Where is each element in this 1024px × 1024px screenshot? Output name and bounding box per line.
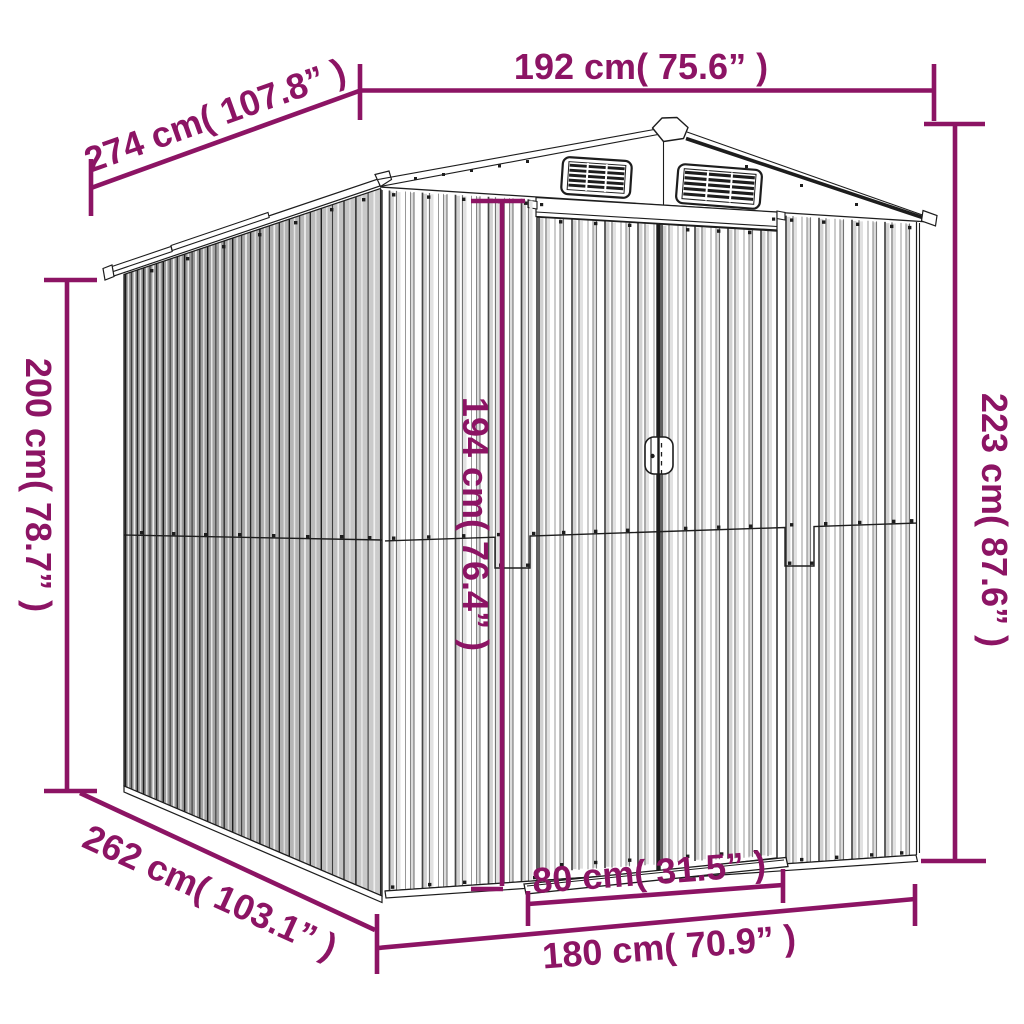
svg-text:194 cm( 76.4” ): 194 cm( 76.4” ) xyxy=(455,397,496,651)
svg-text:200 cm( 78.7” ): 200 cm( 78.7” ) xyxy=(18,358,59,612)
svg-text:192 cm( 75.6” ): 192 cm( 75.6” ) xyxy=(514,46,768,87)
svg-text:223 cm( 87.6” ): 223 cm( 87.6” ) xyxy=(974,393,1015,647)
